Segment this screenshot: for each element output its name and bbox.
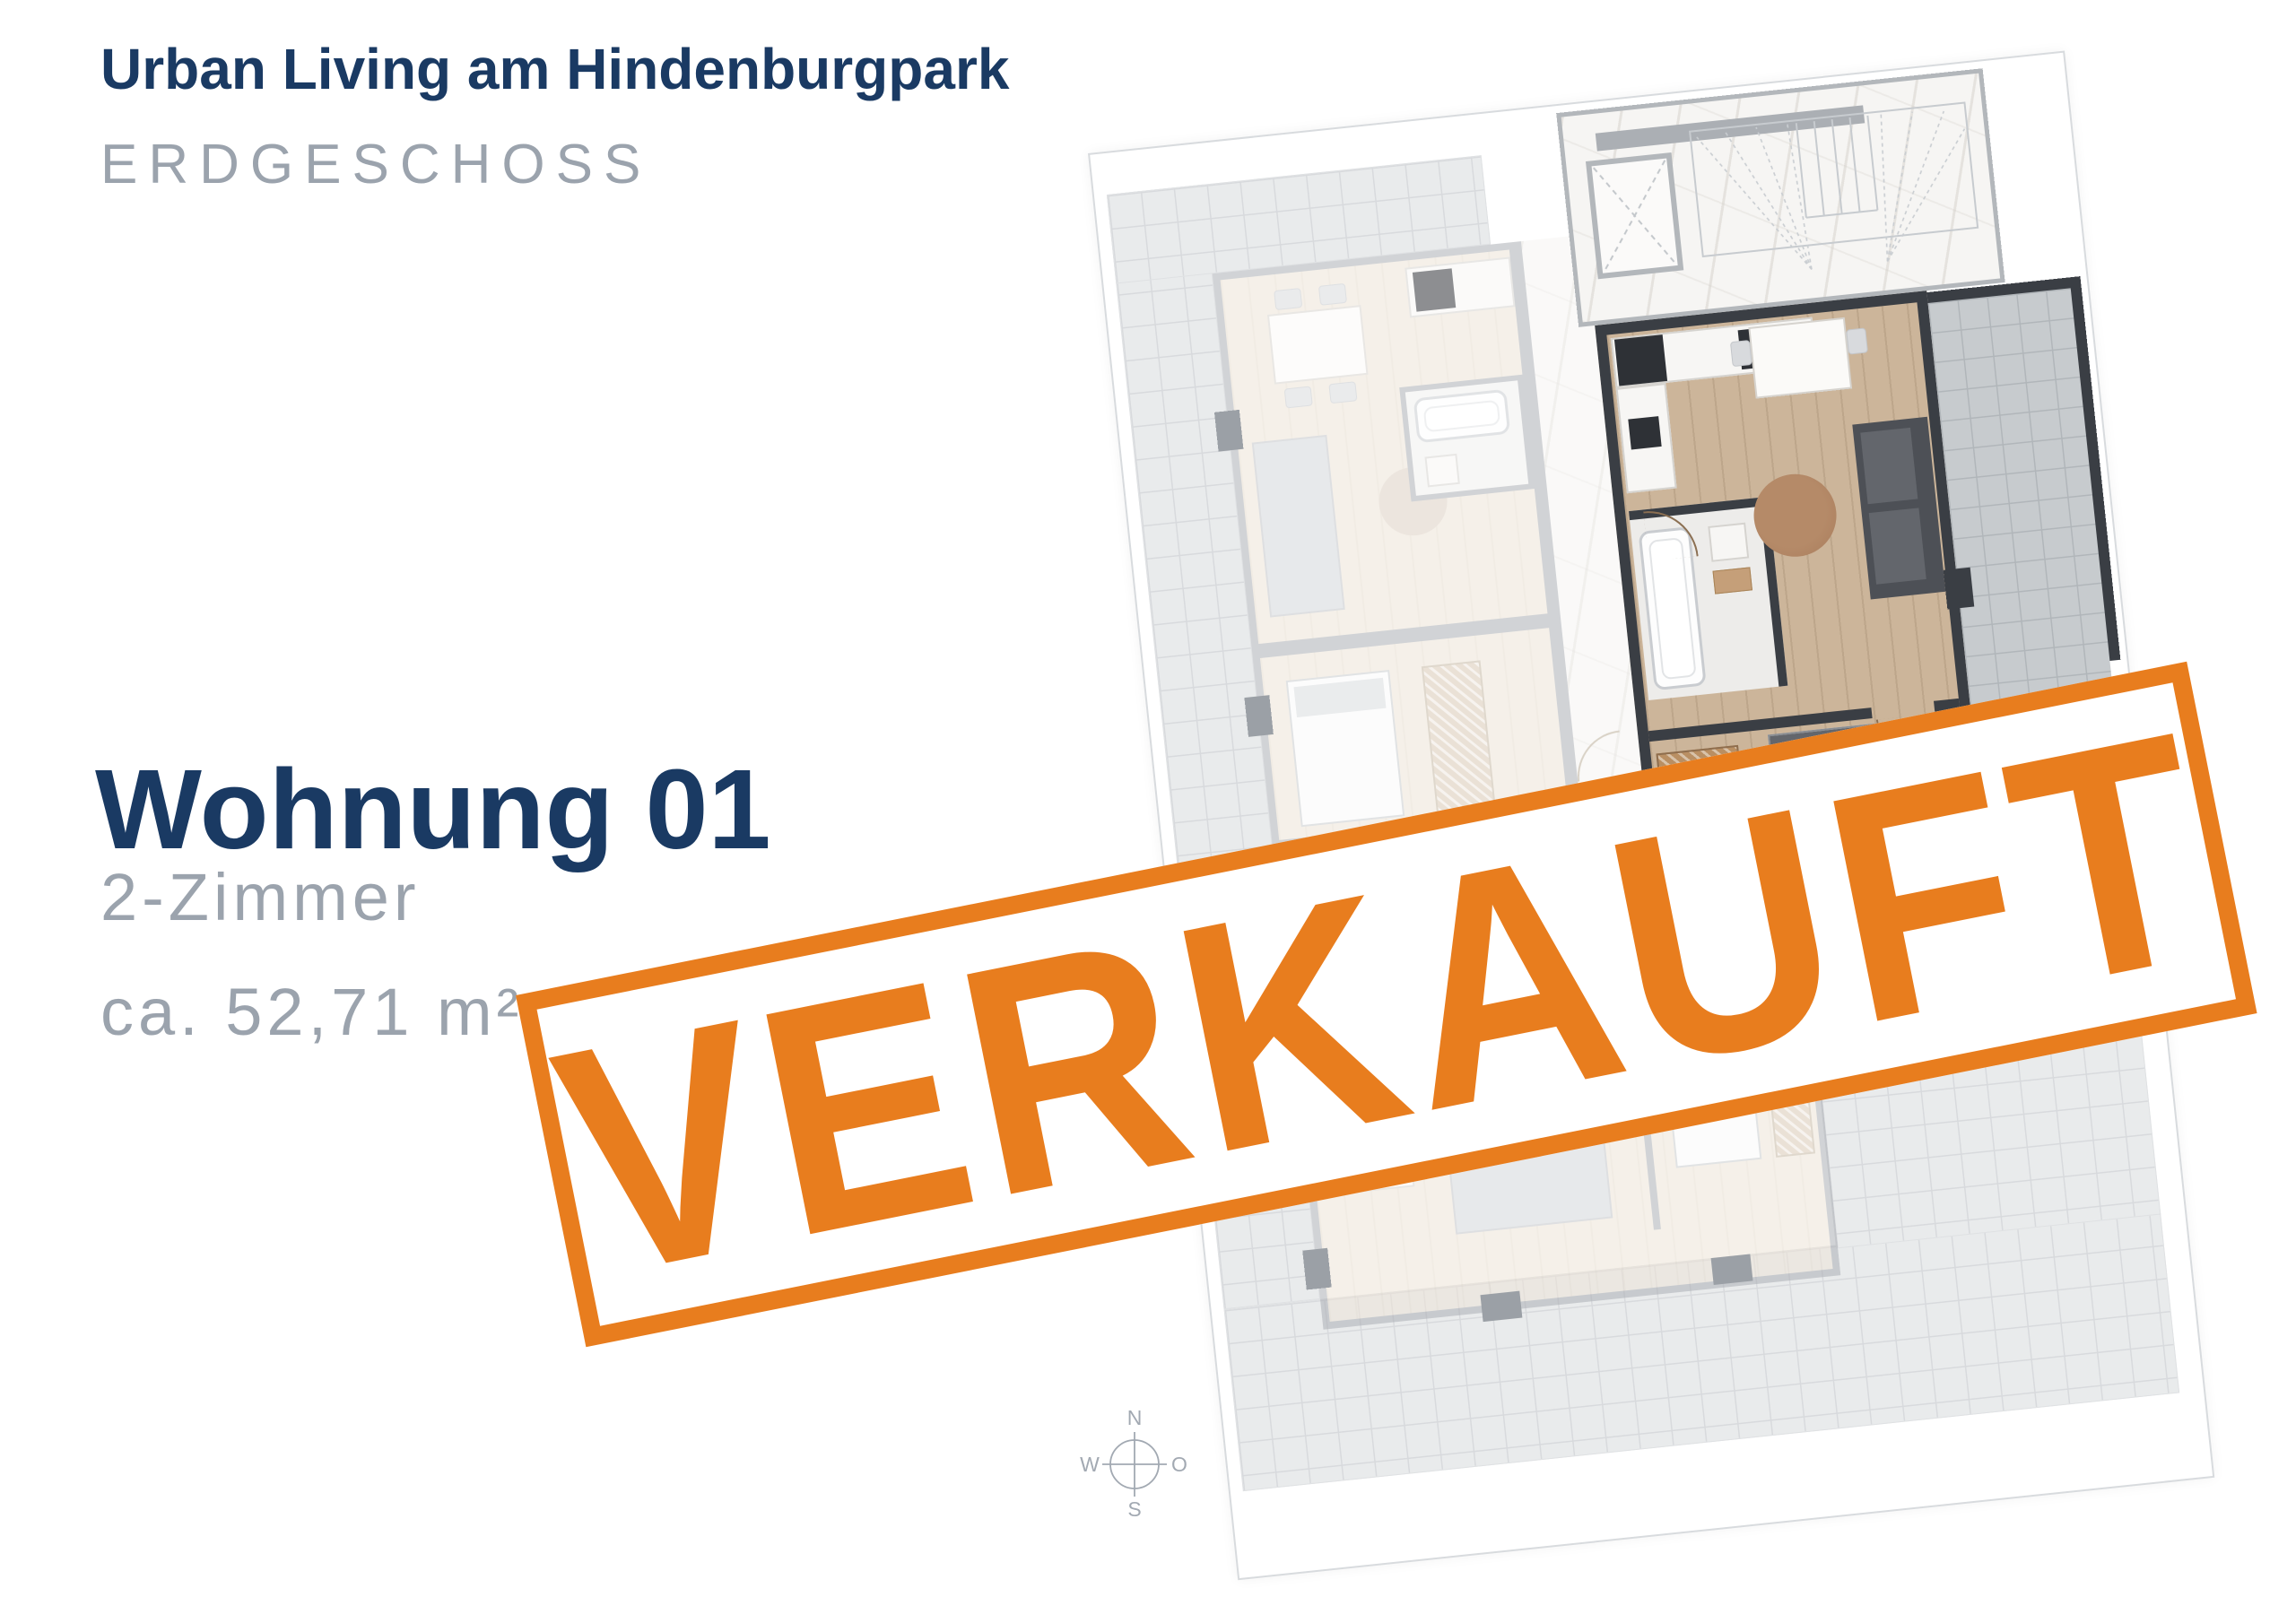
kitchen-sink <box>1628 416 1661 449</box>
pillar <box>1302 1248 1331 1290</box>
stair-lobby <box>1556 68 2005 327</box>
bathroom <box>1399 375 1535 502</box>
pillar <box>1214 410 1243 452</box>
compass-east-label: O <box>1171 1453 1187 1476</box>
pillar <box>1711 1254 1753 1285</box>
apartment-rooms: 2-Zimmer <box>100 859 421 935</box>
stove <box>1413 268 1456 311</box>
compass-north-label: N <box>1127 1406 1143 1429</box>
terrace-pillar <box>1944 568 1974 610</box>
sink <box>1708 523 1749 562</box>
elevator-icon <box>1586 152 1683 279</box>
compass-south-label: S <box>1127 1497 1141 1521</box>
floor-label: ERDGESCHOSS <box>100 133 651 196</box>
chair <box>1846 327 1868 354</box>
dining-table <box>1748 317 1852 399</box>
chair <box>1274 288 1302 310</box>
sofa <box>1252 435 1345 618</box>
wardrobe <box>1422 660 1496 812</box>
chair <box>1284 386 1313 408</box>
sink <box>1424 454 1459 488</box>
sofa <box>1852 417 1945 600</box>
shelf <box>1712 567 1752 594</box>
faded-unit-1 <box>1213 242 1555 652</box>
stairs-icon <box>1689 101 1982 286</box>
project-title: Urban Living am Hindenburgpark <box>100 36 1009 102</box>
apartment-name: Wohnung 01 <box>95 744 771 874</box>
dining-table <box>1267 305 1369 385</box>
brochure-page: Urban Living am Hindenburgpark ERDGESCHO… <box>0 0 2296 1623</box>
bathtub <box>1413 389 1511 444</box>
compass-west-label: W <box>1080 1453 1100 1476</box>
chair <box>1328 381 1357 404</box>
pillar <box>1244 695 1273 737</box>
compass-icon: N S W O <box>1072 1402 1197 1527</box>
chair <box>1318 283 1347 306</box>
bed <box>1286 670 1405 827</box>
stove <box>1614 334 1667 386</box>
pillar <box>1480 1291 1522 1322</box>
apartment-area: ca. 52,71 m² <box>100 974 523 1050</box>
chair <box>1730 340 1752 367</box>
